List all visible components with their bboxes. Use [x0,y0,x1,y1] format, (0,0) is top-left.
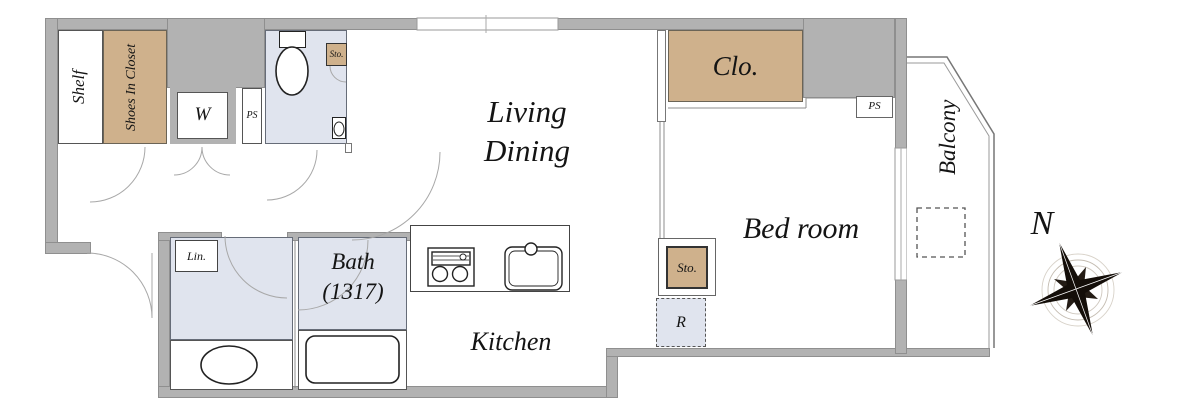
compass-star-cardinals [1029,242,1123,336]
compass-rose [1029,242,1123,336]
washer-door-arc-left [174,147,202,175]
compass-north-label: N [1024,204,1060,245]
toilet-door-arc [267,150,317,200]
bedroom-storage-label: Sto. [666,246,708,289]
shelf-label: Shelf [70,34,90,140]
wall-balcony-stub [907,139,917,148]
vanity-counter [170,340,293,390]
partition-living-bedroom [657,30,666,122]
ps-step-line [806,98,856,108]
bath-label: Bath (1317) [298,247,408,307]
compass-star-diagonals [1054,267,1098,311]
pipe-space-label-1: PS [242,88,262,144]
wall-right [895,18,907,354]
bedroom-closet-label: Clo. [668,30,803,102]
wall-washblock-left [158,232,170,398]
toilet-storage-label: Sto. [326,43,347,66]
washer-label: W [177,92,228,139]
wall-hall-bottom [45,242,91,254]
bathtub-outer [298,330,407,390]
kitchen-label: Kitchen [431,326,591,357]
toilet-tank [279,31,306,48]
wall-closet-block [803,18,895,98]
shoes-closet-door-arc [90,147,145,202]
toilet-corner-sink [332,117,346,139]
kitchen-counter [410,225,570,292]
washer-door-arc-right [202,147,230,175]
linen-label: Lin. [175,240,218,272]
living-dining-label: Living Dining [413,92,641,170]
hall-living-stub [345,143,352,153]
floor-plan: Shelf Shoes In Closet W PS Sto. Living D… [0,0,1200,413]
shoes-closet-label: Shoes In Closet [125,32,145,142]
entrance-door-arc [87,253,152,318]
wall-utility-block [167,18,265,88]
refrigerator-label: R [656,298,706,347]
wall-left [45,18,58,254]
wall-bedroom-bottom [606,348,990,357]
bedroom-label: Bed room [701,211,901,247]
balcony-hatch-dashed-square [917,208,965,257]
compass-facet-lines [1029,242,1123,336]
balcony-label: Balcony [936,76,960,198]
pipe-space-label-2: PS [856,96,893,118]
